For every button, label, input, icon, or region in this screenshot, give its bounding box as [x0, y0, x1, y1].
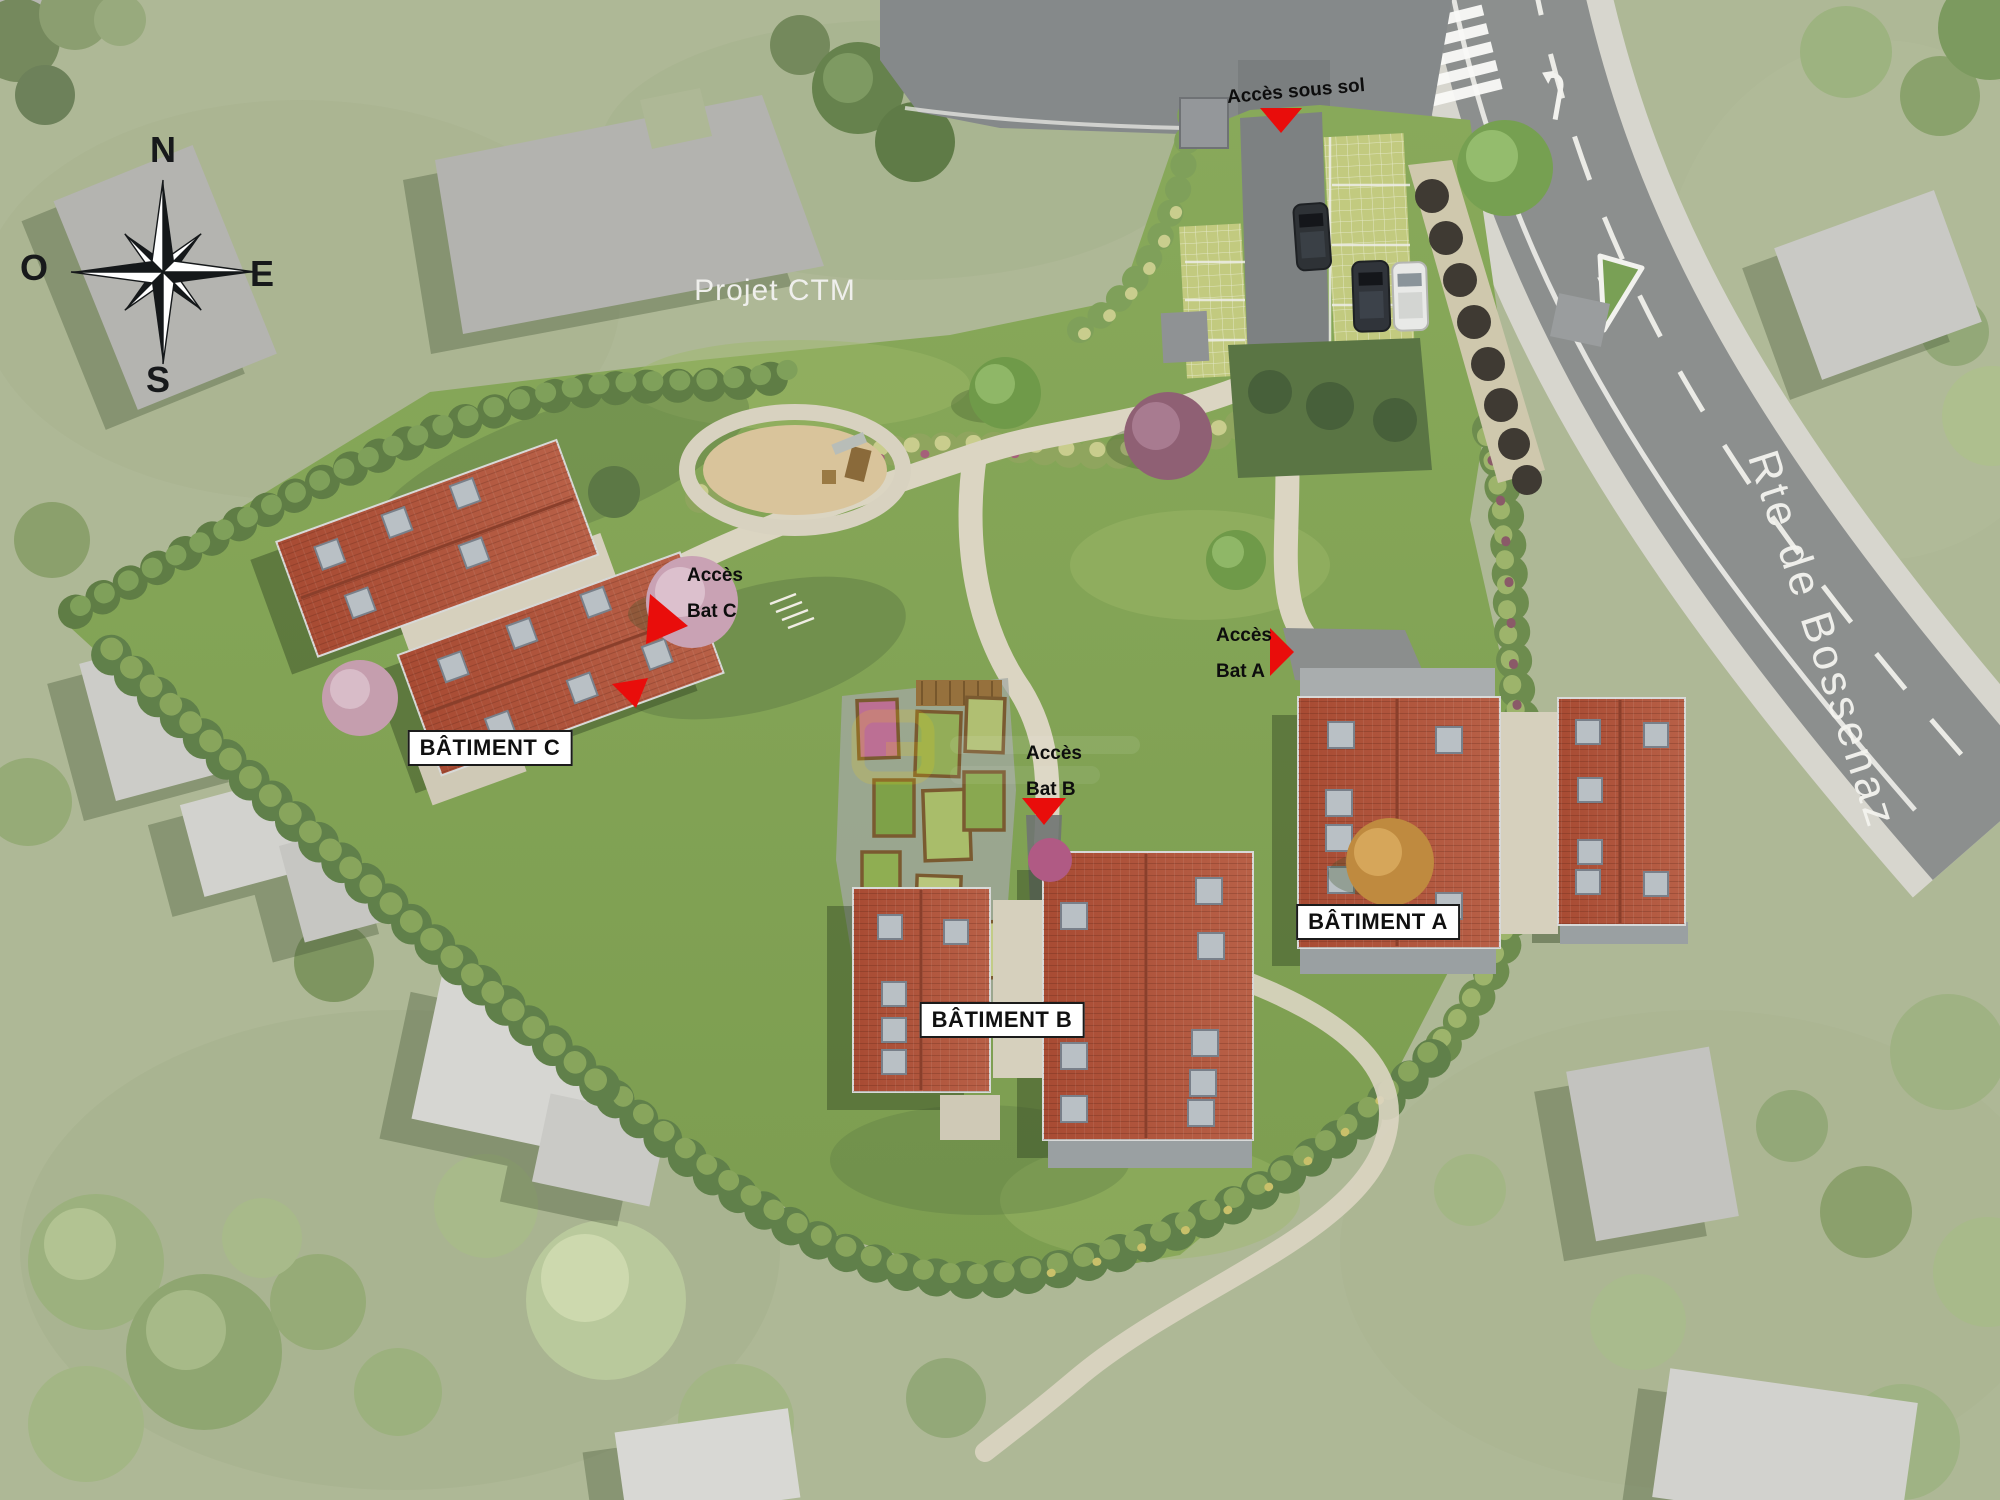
compass-letter-west: O	[20, 247, 48, 289]
building-b-block-1	[853, 888, 990, 1092]
access-bat-c-label: Accès Bat C	[687, 558, 743, 630]
building-b-label: BÂTIMENT B	[920, 1002, 1085, 1038]
compass-letter-south: S	[146, 359, 170, 401]
bike-shelter	[1161, 311, 1210, 363]
projet-ctm-label: Projet CTM	[694, 274, 856, 308]
building-a-block-2	[1558, 698, 1685, 925]
site-plan-artwork	[0, 0, 2000, 1500]
access-bat-a-label: Accès Bat A	[1216, 618, 1272, 690]
compass-letter-east: E	[250, 253, 274, 295]
shed	[1180, 98, 1228, 148]
building-b-block-2	[1043, 852, 1253, 1140]
access-bat-b-label: Accès Bat B	[1026, 736, 1082, 808]
site-plan: N O E S Projet CTM Accès sous sol Accès …	[0, 0, 2000, 1500]
building-c-label: BÂTIMENT C	[408, 730, 573, 766]
compass-letter-north: N	[150, 129, 176, 171]
playground	[687, 412, 903, 528]
building-a-label: BÂTIMENT A	[1296, 904, 1460, 940]
